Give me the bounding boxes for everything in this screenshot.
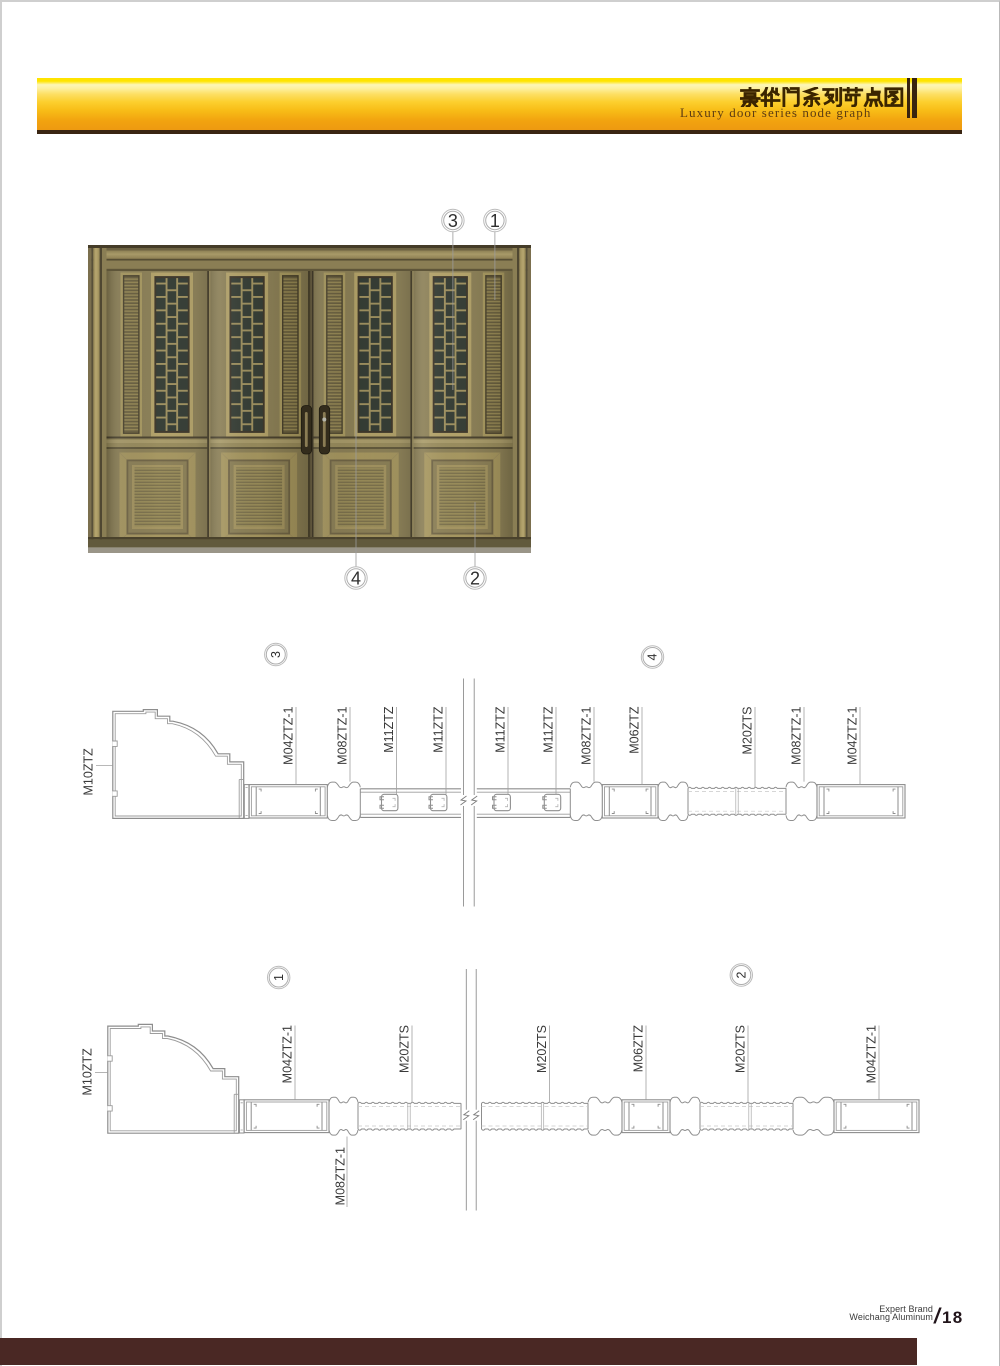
svg-text:2: 2 [470,568,480,588]
svg-text:1: 1 [272,974,286,981]
svg-text:M10ZTZ: M10ZTZ [80,1048,94,1096]
svg-text:4: 4 [646,653,660,660]
svg-text:M04ZTZ-1: M04ZTZ-1 [282,706,296,764]
svg-text:M10ZTZ: M10ZTZ [81,748,95,796]
svg-text:M11ZTZ: M11ZTZ [382,706,396,753]
svg-text:2: 2 [734,971,748,978]
svg-text:M11ZTZ: M11ZTZ [542,706,556,753]
svg-text:M08ZTZ-1: M08ZTZ-1 [336,706,350,764]
svg-text:M06ZTZ: M06ZTZ [632,1025,646,1073]
svg-text:M04ZTZ-1: M04ZTZ-1 [281,1025,295,1083]
svg-text:3: 3 [448,211,458,231]
svg-text:M04ZTZ-1: M04ZTZ-1 [865,1025,879,1083]
svg-text:M20ZTS: M20ZTS [398,1025,412,1073]
svg-text:M20ZTS: M20ZTS [535,1025,549,1073]
svg-text:M11ZTZ: M11ZTZ [432,706,446,753]
svg-text:1: 1 [490,211,500,231]
svg-text:M20ZTS: M20ZTS [741,707,755,755]
svg-text:M11ZTZ: M11ZTZ [494,706,508,753]
svg-text:M04ZTZ-1: M04ZTZ-1 [846,706,860,764]
svg-text:M06ZTZ: M06ZTZ [628,706,642,754]
svg-text:3: 3 [269,651,283,658]
svg-text:4: 4 [351,568,361,588]
svg-text:M20ZTS: M20ZTS [734,1025,748,1073]
svg-text:M08ZTZ-1: M08ZTZ-1 [334,1147,348,1205]
svg-text:M08ZTZ-1: M08ZTZ-1 [790,706,804,764]
svg-text:M08ZTZ-1: M08ZTZ-1 [580,706,594,764]
